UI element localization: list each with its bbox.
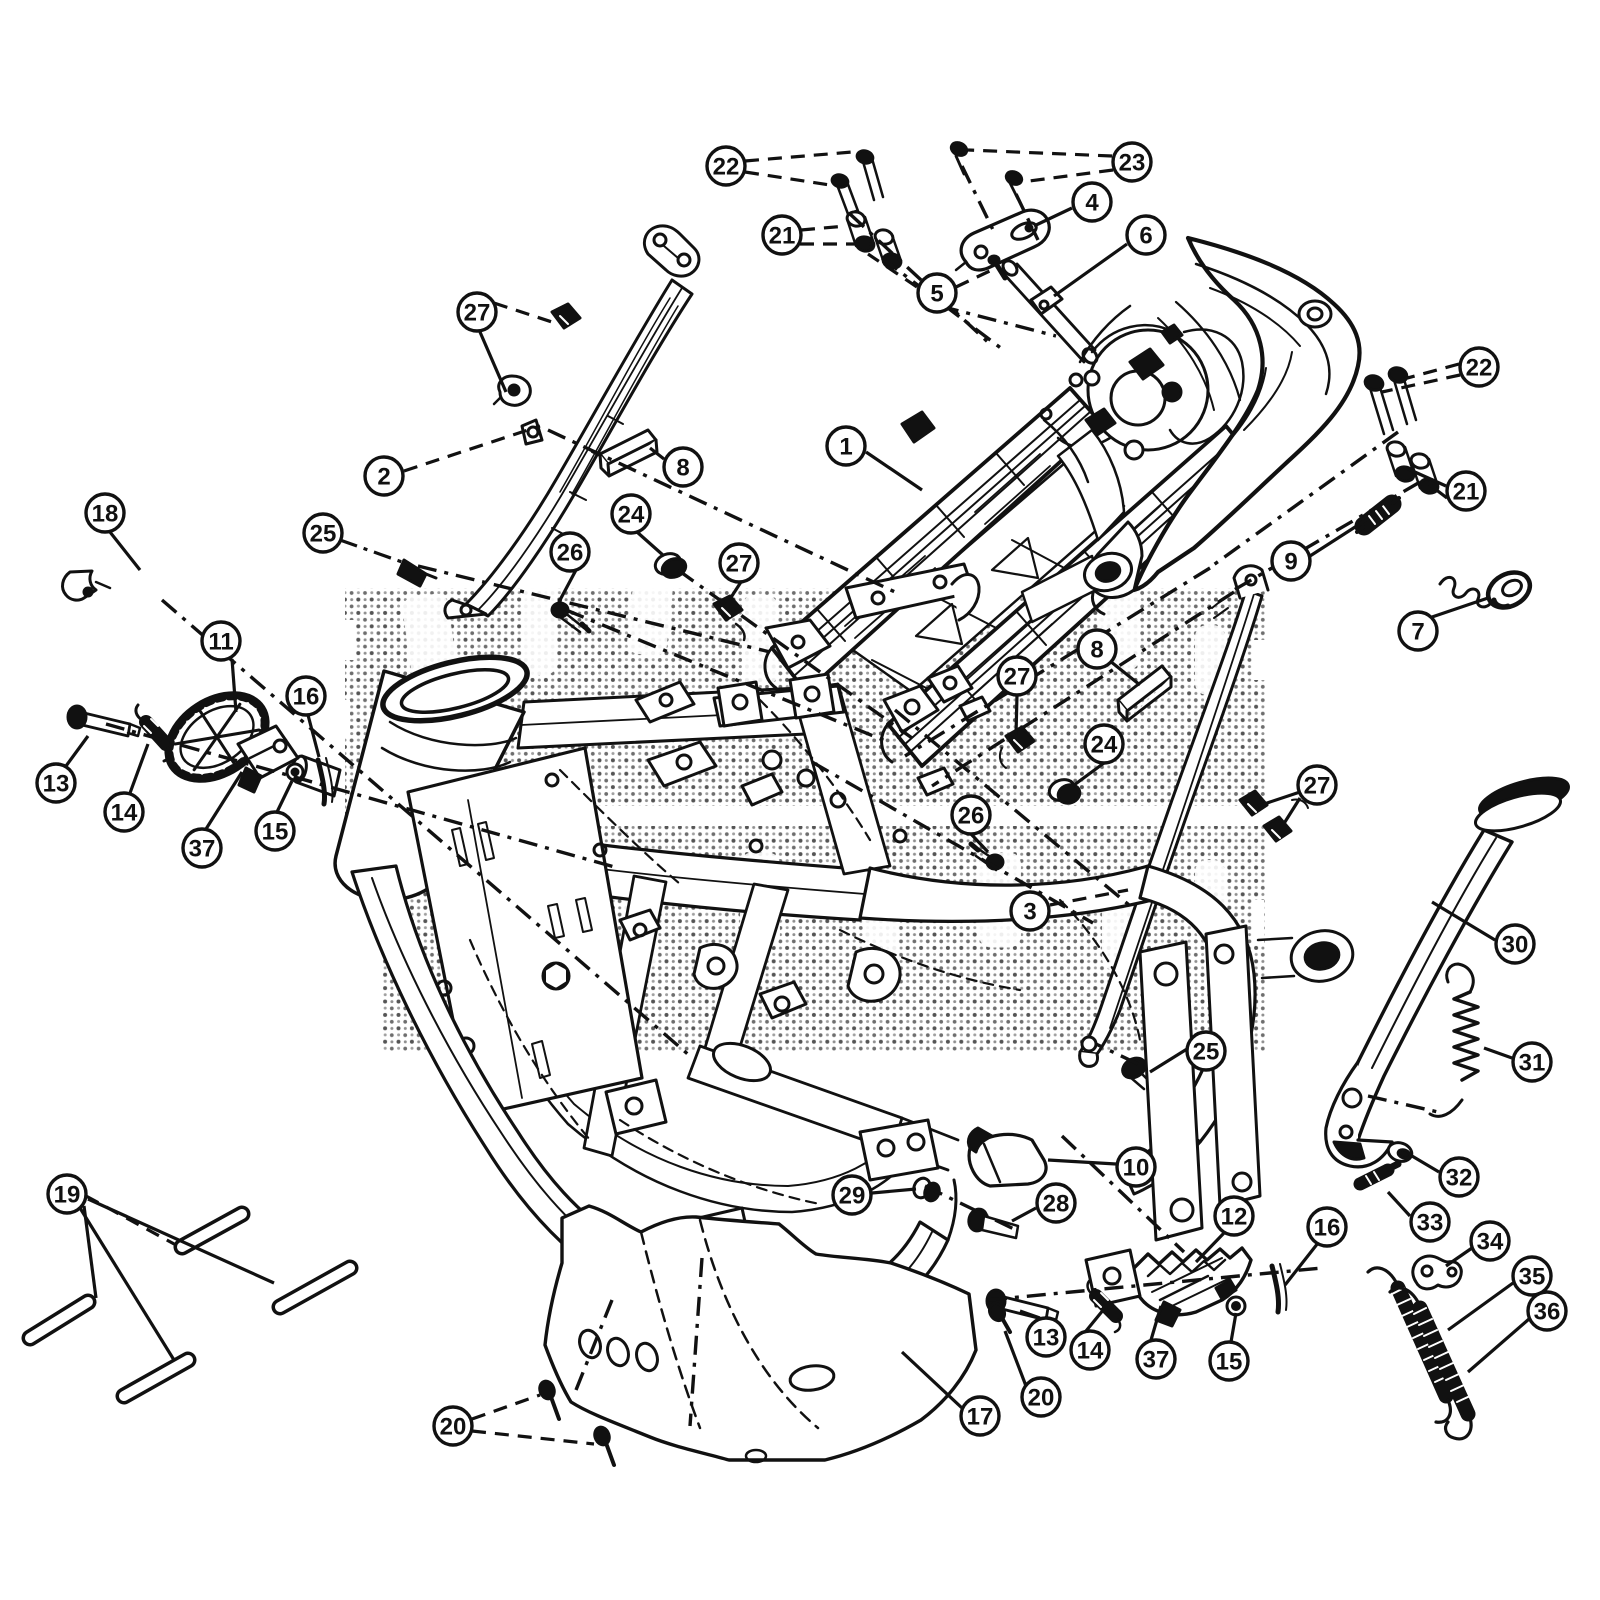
svg-text:18: 18 bbox=[92, 501, 119, 528]
svg-text:6: 6 bbox=[1139, 223, 1152, 250]
svg-text:25: 25 bbox=[1193, 1039, 1220, 1066]
svg-text:21: 21 bbox=[1453, 479, 1480, 506]
svg-text:22: 22 bbox=[713, 154, 740, 181]
svg-text:4: 4 bbox=[1085, 190, 1099, 217]
svg-text:33: 33 bbox=[1417, 1210, 1444, 1237]
svg-text:19: 19 bbox=[54, 1182, 81, 1209]
svg-text:17: 17 bbox=[967, 1404, 994, 1431]
svg-text:36: 36 bbox=[1534, 1299, 1561, 1326]
svg-text:14: 14 bbox=[111, 800, 138, 827]
svg-text:3: 3 bbox=[1023, 899, 1036, 926]
svg-text:1: 1 bbox=[839, 434, 852, 461]
svg-text:24: 24 bbox=[618, 502, 645, 529]
svg-text:27: 27 bbox=[1004, 664, 1031, 691]
svg-text:35: 35 bbox=[1519, 1264, 1546, 1291]
svg-text:27: 27 bbox=[464, 300, 491, 327]
svg-text:8: 8 bbox=[1090, 637, 1103, 664]
svg-text:16: 16 bbox=[1314, 1215, 1341, 1242]
svg-text:22: 22 bbox=[1466, 355, 1493, 382]
svg-text:37: 37 bbox=[189, 836, 216, 863]
svg-text:11: 11 bbox=[208, 629, 233, 656]
svg-text:13: 13 bbox=[43, 771, 70, 798]
svg-text:20: 20 bbox=[440, 1414, 467, 1441]
svg-text:21: 21 bbox=[769, 223, 796, 250]
svg-text:2: 2 bbox=[377, 464, 390, 491]
svg-text:15: 15 bbox=[1216, 1349, 1243, 1376]
svg-text:26: 26 bbox=[958, 803, 985, 830]
svg-text:5: 5 bbox=[930, 281, 943, 308]
svg-text:27: 27 bbox=[726, 551, 753, 578]
svg-text:10: 10 bbox=[1123, 1155, 1150, 1182]
svg-text:8: 8 bbox=[676, 455, 689, 482]
svg-text:23: 23 bbox=[1119, 150, 1146, 177]
svg-text:28: 28 bbox=[1043, 1191, 1070, 1218]
svg-text:16: 16 bbox=[293, 684, 320, 711]
svg-text:34: 34 bbox=[1477, 1229, 1504, 1256]
svg-text:15: 15 bbox=[262, 819, 289, 846]
svg-text:24: 24 bbox=[1091, 732, 1118, 759]
svg-text:30: 30 bbox=[1502, 932, 1529, 959]
svg-text:13: 13 bbox=[1033, 1325, 1060, 1352]
svg-text:9: 9 bbox=[1284, 549, 1297, 576]
svg-text:12: 12 bbox=[1221, 1204, 1248, 1231]
svg-text:26: 26 bbox=[557, 540, 584, 567]
svg-text:20: 20 bbox=[1028, 1385, 1055, 1412]
svg-text:7: 7 bbox=[1411, 619, 1424, 646]
svg-text:37: 37 bbox=[1143, 1347, 1170, 1374]
svg-text:31: 31 bbox=[1519, 1050, 1546, 1077]
svg-text:27: 27 bbox=[1304, 773, 1331, 800]
svg-text:29: 29 bbox=[839, 1183, 866, 1210]
svg-text:32: 32 bbox=[1446, 1165, 1473, 1192]
svg-text:14: 14 bbox=[1077, 1338, 1104, 1365]
svg-text:25: 25 bbox=[310, 521, 337, 548]
